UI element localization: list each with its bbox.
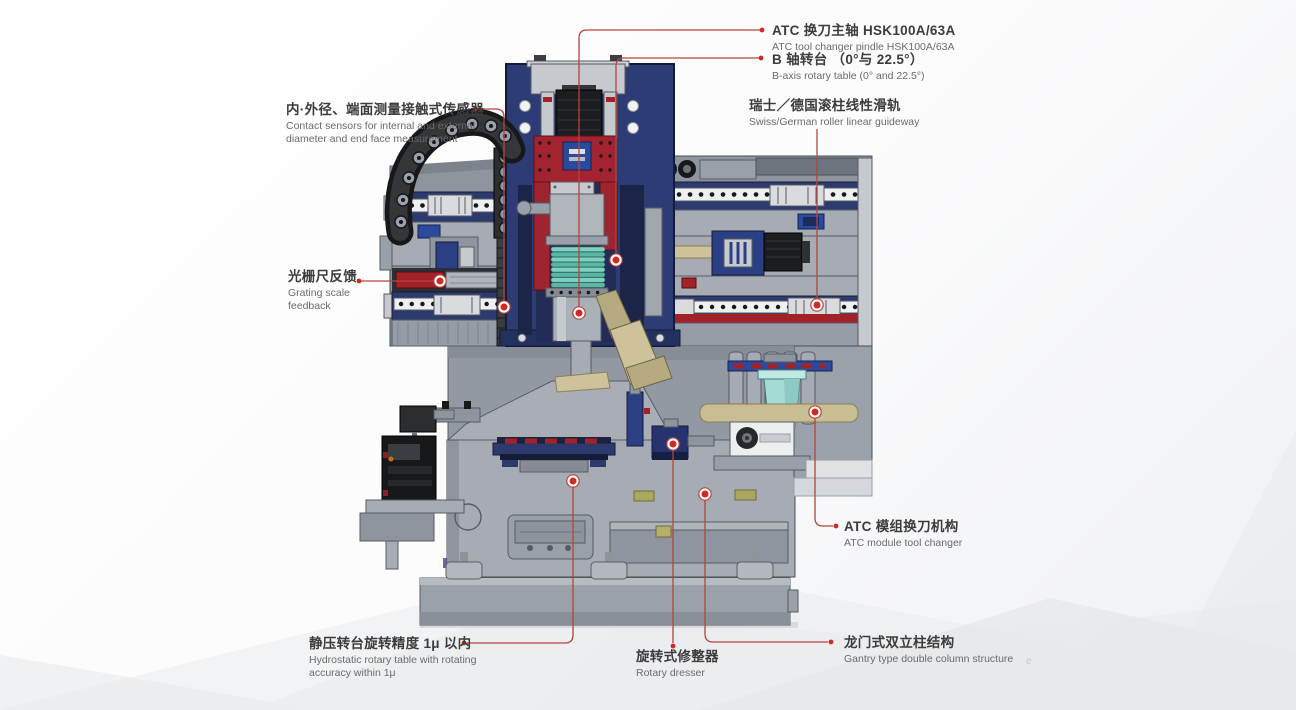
bellows [551, 247, 605, 287]
label-rotary-dresser-cn: 旋转式修整器 [636, 645, 719, 665]
label-grating-scale-cn: 光栅尺反馈 [288, 265, 360, 285]
label-gantry-structure-en: Gantry type double column structure [844, 653, 1013, 666]
label-b-axis-cn: B 轴转台 （0°与 22.5°） [772, 48, 925, 68]
label-atc-spindle-cn: ATC 换刀主轴 HSK100A/63A [772, 19, 956, 39]
label-contact-sensor-en: Contact sensors for internal and externa… [286, 120, 478, 146]
label-hydrostatic-table: 静压转台旋转精度 1μ 以内 Hydrostatic rotary table … [309, 632, 491, 680]
label-b-axis: B 轴转台 （0°与 22.5°） B-axis rotary table (0… [772, 48, 925, 83]
machine-illustration [0, 0, 1296, 710]
label-hydrostatic-table-en: Hydrostatic rotary table with rotating a… [309, 654, 491, 680]
label-grating-scale: 光栅尺反馈 Grating scale feedback [288, 265, 360, 313]
label-contact-sensor: 内·外径、端面测量接触式传感器 Contact sensors for inte… [286, 98, 486, 146]
label-linear-guideway-cn: 瑞士／德国滚柱线性滑轨 [749, 94, 919, 114]
label-contact-sensor-cn: 内·外径、端面测量接触式传感器 [286, 98, 486, 118]
label-atc-module-cn: ATC 模组换刀机构 [844, 515, 962, 535]
label-linear-guideway: 瑞士／德国滚柱线性滑轨 Swiss/German roller linear g… [749, 94, 919, 129]
label-atc-module-en: ATC module tool changer [844, 537, 962, 550]
label-linear-guideway-en: Swiss/German roller linear guideway [749, 116, 919, 129]
hydrostatic-rotary-table [493, 437, 615, 472]
label-b-axis-en: B-axis rotary table (0° and 22.5°) [772, 70, 925, 83]
label-gantry-structure-cn: 龙门式双立柱结构 [844, 631, 1013, 651]
label-grating-scale-en: Grating scale feedback [288, 287, 360, 313]
label-hydrostatic-table-cn: 静压转台旋转精度 1μ 以内 [309, 632, 491, 652]
label-gantry-structure: 龙门式双立柱结构 Gantry type double column struc… [844, 631, 1013, 666]
label-rotary-dresser: 旋转式修整器 Rotary dresser [636, 645, 719, 680]
label-atc-module: ATC 模组换刀机构 ATC module tool changer [844, 515, 962, 550]
label-rotary-dresser-en: Rotary dresser [636, 667, 719, 680]
background-watermark: e [1026, 656, 1032, 667]
right-beam-assembly [658, 156, 872, 346]
machine-diagram-page: ATC 换刀主轴 HSK100A/63A ATC tool changer pi… [0, 0, 1296, 710]
